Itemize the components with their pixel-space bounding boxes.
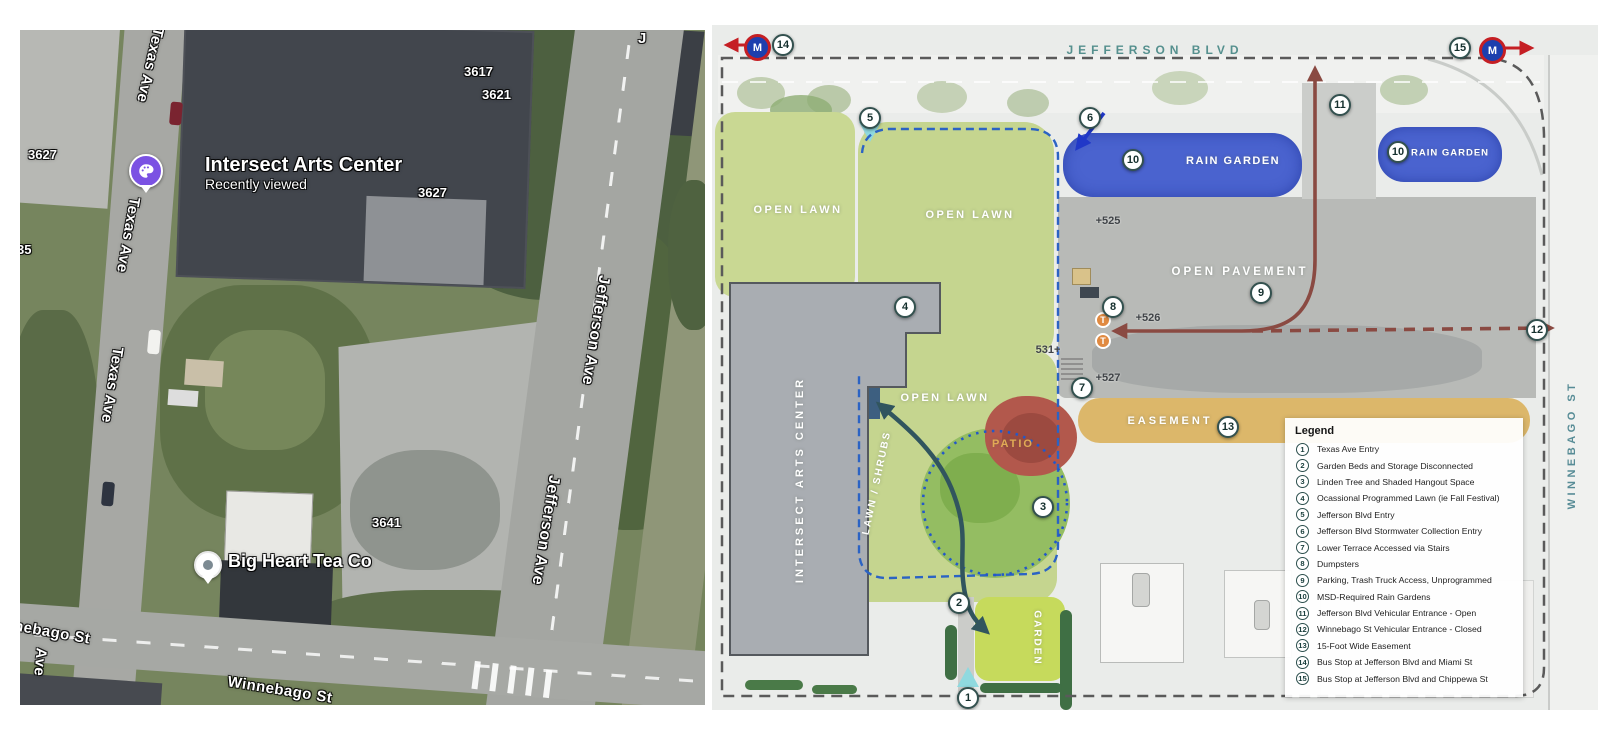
- legend-item: 7Lower Terrace Accessed via Stairs: [1285, 539, 1523, 555]
- legend-item: 15Bus Stop at Jefferson Blvd and Chippew…: [1285, 670, 1523, 686]
- roof-building: [20, 673, 162, 705]
- street-label-j: J: [638, 30, 647, 47]
- garden-area: [975, 597, 1065, 681]
- legend-num: 10: [1296, 590, 1309, 603]
- legend-num: 8: [1296, 557, 1309, 570]
- legend-item: 3Linden Tree and Shaded Hangout Space: [1285, 474, 1523, 490]
- poi-dot-icon: [203, 560, 213, 570]
- marker-tail: [202, 576, 214, 584]
- street-label-ave: Ave: [30, 647, 49, 677]
- storage-structure: [855, 377, 880, 419]
- big-heart-tea-label[interactable]: Big Heart Tea Co: [228, 551, 372, 572]
- legend-num: 3: [1296, 475, 1309, 488]
- car: [1254, 600, 1270, 630]
- open-lawn-label: OPEN LAWN: [900, 392, 989, 404]
- legend-item: 2Garden Beds and Storage Disconnected: [1285, 457, 1523, 473]
- legend-item: 14Bus Stop at Jefferson Blvd and Miami S…: [1285, 654, 1523, 670]
- legend-num: 11: [1296, 607, 1309, 620]
- legend-num: 5: [1296, 508, 1309, 521]
- entry-triangle: [957, 667, 979, 687]
- plan-marker-2: 2: [948, 592, 970, 614]
- elevation-label: +526: [1136, 312, 1161, 324]
- legend-item: 12Winnebago St Vehicular Entrance - Clos…: [1285, 621, 1523, 637]
- address-label: 35: [20, 242, 31, 257]
- hedge: [980, 683, 1062, 693]
- legend-num: 13: [1296, 639, 1309, 652]
- legend-item: 4Ocassional Programmed Lawn (ie Fall Fes…: [1285, 490, 1523, 506]
- legend-num: 1: [1296, 443, 1309, 456]
- street-tree: [1152, 71, 1208, 105]
- elevation-label: +527: [1096, 372, 1121, 384]
- address-label: 3617: [464, 64, 493, 79]
- trash-badge: T: [1095, 333, 1111, 349]
- plan-marker-1: 1: [957, 687, 979, 709]
- plan-marker-10: 10: [1387, 141, 1409, 163]
- garden-label: GARDEN: [1032, 610, 1043, 665]
- elevation-label: 531+: [1036, 344, 1061, 356]
- page: Texas Ave Texas Ave Texas Ave Jefferson …: [0, 0, 1600, 746]
- intersect-arts-center-marker[interactable]: [129, 154, 163, 188]
- plan-marker-6: 6: [1079, 107, 1101, 129]
- legend-panel: Legend 1Texas Ave Entry 2Garden Beds and…: [1285, 418, 1523, 697]
- legend-item: 1315-Foot Wide Easement: [1285, 638, 1523, 654]
- plan-marker-9: 9: [1250, 282, 1272, 304]
- intersect-arts-center-label[interactable]: Intersect Arts Center: [205, 154, 402, 177]
- palette-icon: [137, 162, 155, 180]
- legend-num: 12: [1296, 623, 1309, 636]
- street-tree: [1007, 89, 1049, 117]
- legend-num: 14: [1296, 656, 1309, 669]
- plan-marker-12: 12: [1526, 319, 1548, 341]
- building-label: INTERSECT ARTS CENTER: [794, 377, 806, 583]
- jefferson-blvd-label: JEFFERSON BLVD: [1066, 43, 1243, 57]
- legend-title: Legend: [1285, 418, 1523, 441]
- rain-garden-label: RAIN GARDEN: [1411, 148, 1489, 159]
- grass-patch: [205, 330, 325, 450]
- arts-center-roof-wing: [364, 196, 487, 285]
- open-lawn-label: OPEN LAWN: [753, 204, 842, 216]
- rain-garden-label: RAIN GARDEN: [1186, 155, 1280, 167]
- legend-num: 15: [1296, 672, 1309, 685]
- address-label: 3621: [482, 87, 511, 102]
- metro-badge: M: [1479, 37, 1506, 64]
- legend-item: 11Jefferson Blvd Vehicular Entrance - Op…: [1285, 605, 1523, 621]
- plan-marker-5: 5: [859, 107, 881, 129]
- metro-badge: M: [744, 34, 771, 61]
- open-lawn-label: OPEN LAWN: [925, 209, 1014, 221]
- car: [1132, 573, 1150, 607]
- plan-marker-4: 4: [894, 296, 916, 318]
- hedge: [812, 685, 857, 694]
- address-label: 3641: [372, 515, 401, 530]
- legend-num: 6: [1296, 525, 1309, 538]
- pavement-shadow: [1092, 325, 1482, 393]
- legend-num: 2: [1296, 459, 1309, 472]
- easement-label: EASEMENT: [1127, 415, 1212, 427]
- dumpster: [1080, 287, 1099, 298]
- trailer: [167, 389, 198, 407]
- plan-marker-7: 7: [1071, 377, 1093, 399]
- patio-label: PATIO: [992, 438, 1034, 450]
- intersect-arts-center-sublabel: Recently viewed: [205, 176, 307, 192]
- plan-marker-11: 11: [1329, 94, 1351, 116]
- hedge: [945, 625, 957, 680]
- open-lawn-area: [858, 122, 1054, 362]
- tree-shadow: [350, 450, 500, 570]
- car: [101, 482, 115, 507]
- legend-num: 9: [1296, 574, 1309, 587]
- hedge: [1060, 610, 1072, 710]
- plan-marker-14: 14: [772, 34, 794, 56]
- plan-marker-15: 15: [1449, 37, 1471, 59]
- satellite-map: Texas Ave Texas Ave Texas Ave Jefferson …: [20, 30, 705, 705]
- car: [147, 330, 161, 355]
- roof-building: [20, 30, 120, 209]
- address-label: 3627: [418, 185, 447, 200]
- legend-item: 10MSD-Required Rain Gardens: [1285, 589, 1523, 605]
- elevation-label: +525: [1096, 215, 1121, 227]
- plan-marker-8: 8: [1102, 296, 1124, 318]
- marker-tail: [140, 185, 152, 193]
- tree-canopy: [668, 180, 705, 330]
- shed: [184, 359, 224, 388]
- shed: [1072, 268, 1091, 285]
- address-label: 3627: [28, 147, 57, 162]
- legend-item: 9Parking, Trash Truck Access, Unprogramm…: [1285, 572, 1523, 588]
- legend-num: 7: [1296, 541, 1309, 554]
- legend-item: 6Jefferson Blvd Stormwater Collection En…: [1285, 523, 1523, 539]
- plan-marker-3: 3: [1032, 496, 1054, 518]
- open-pavement-label: OPEN PAVEMENT: [1172, 266, 1309, 278]
- legend-item: 5Jefferson Blvd Entry: [1285, 507, 1523, 523]
- hedge: [745, 680, 803, 690]
- big-heart-tea-marker[interactable]: [194, 551, 222, 579]
- legend-item: 8Dumpsters: [1285, 556, 1523, 572]
- street-tree: [917, 81, 967, 113]
- site-plan: JEFFERSON BLVD WINNEBAGO ST OPEN LAWN OP…: [712, 25, 1598, 710]
- winnebago-st-label: WINNEBAGO ST: [1566, 381, 1578, 510]
- street-tree: [1380, 75, 1428, 105]
- car: [169, 102, 183, 126]
- legend-item: 1Texas Ave Entry: [1285, 441, 1523, 457]
- plan-marker-13: 13: [1217, 416, 1239, 438]
- legend-num: 4: [1296, 492, 1309, 505]
- plan-marker-10: 10: [1122, 149, 1144, 171]
